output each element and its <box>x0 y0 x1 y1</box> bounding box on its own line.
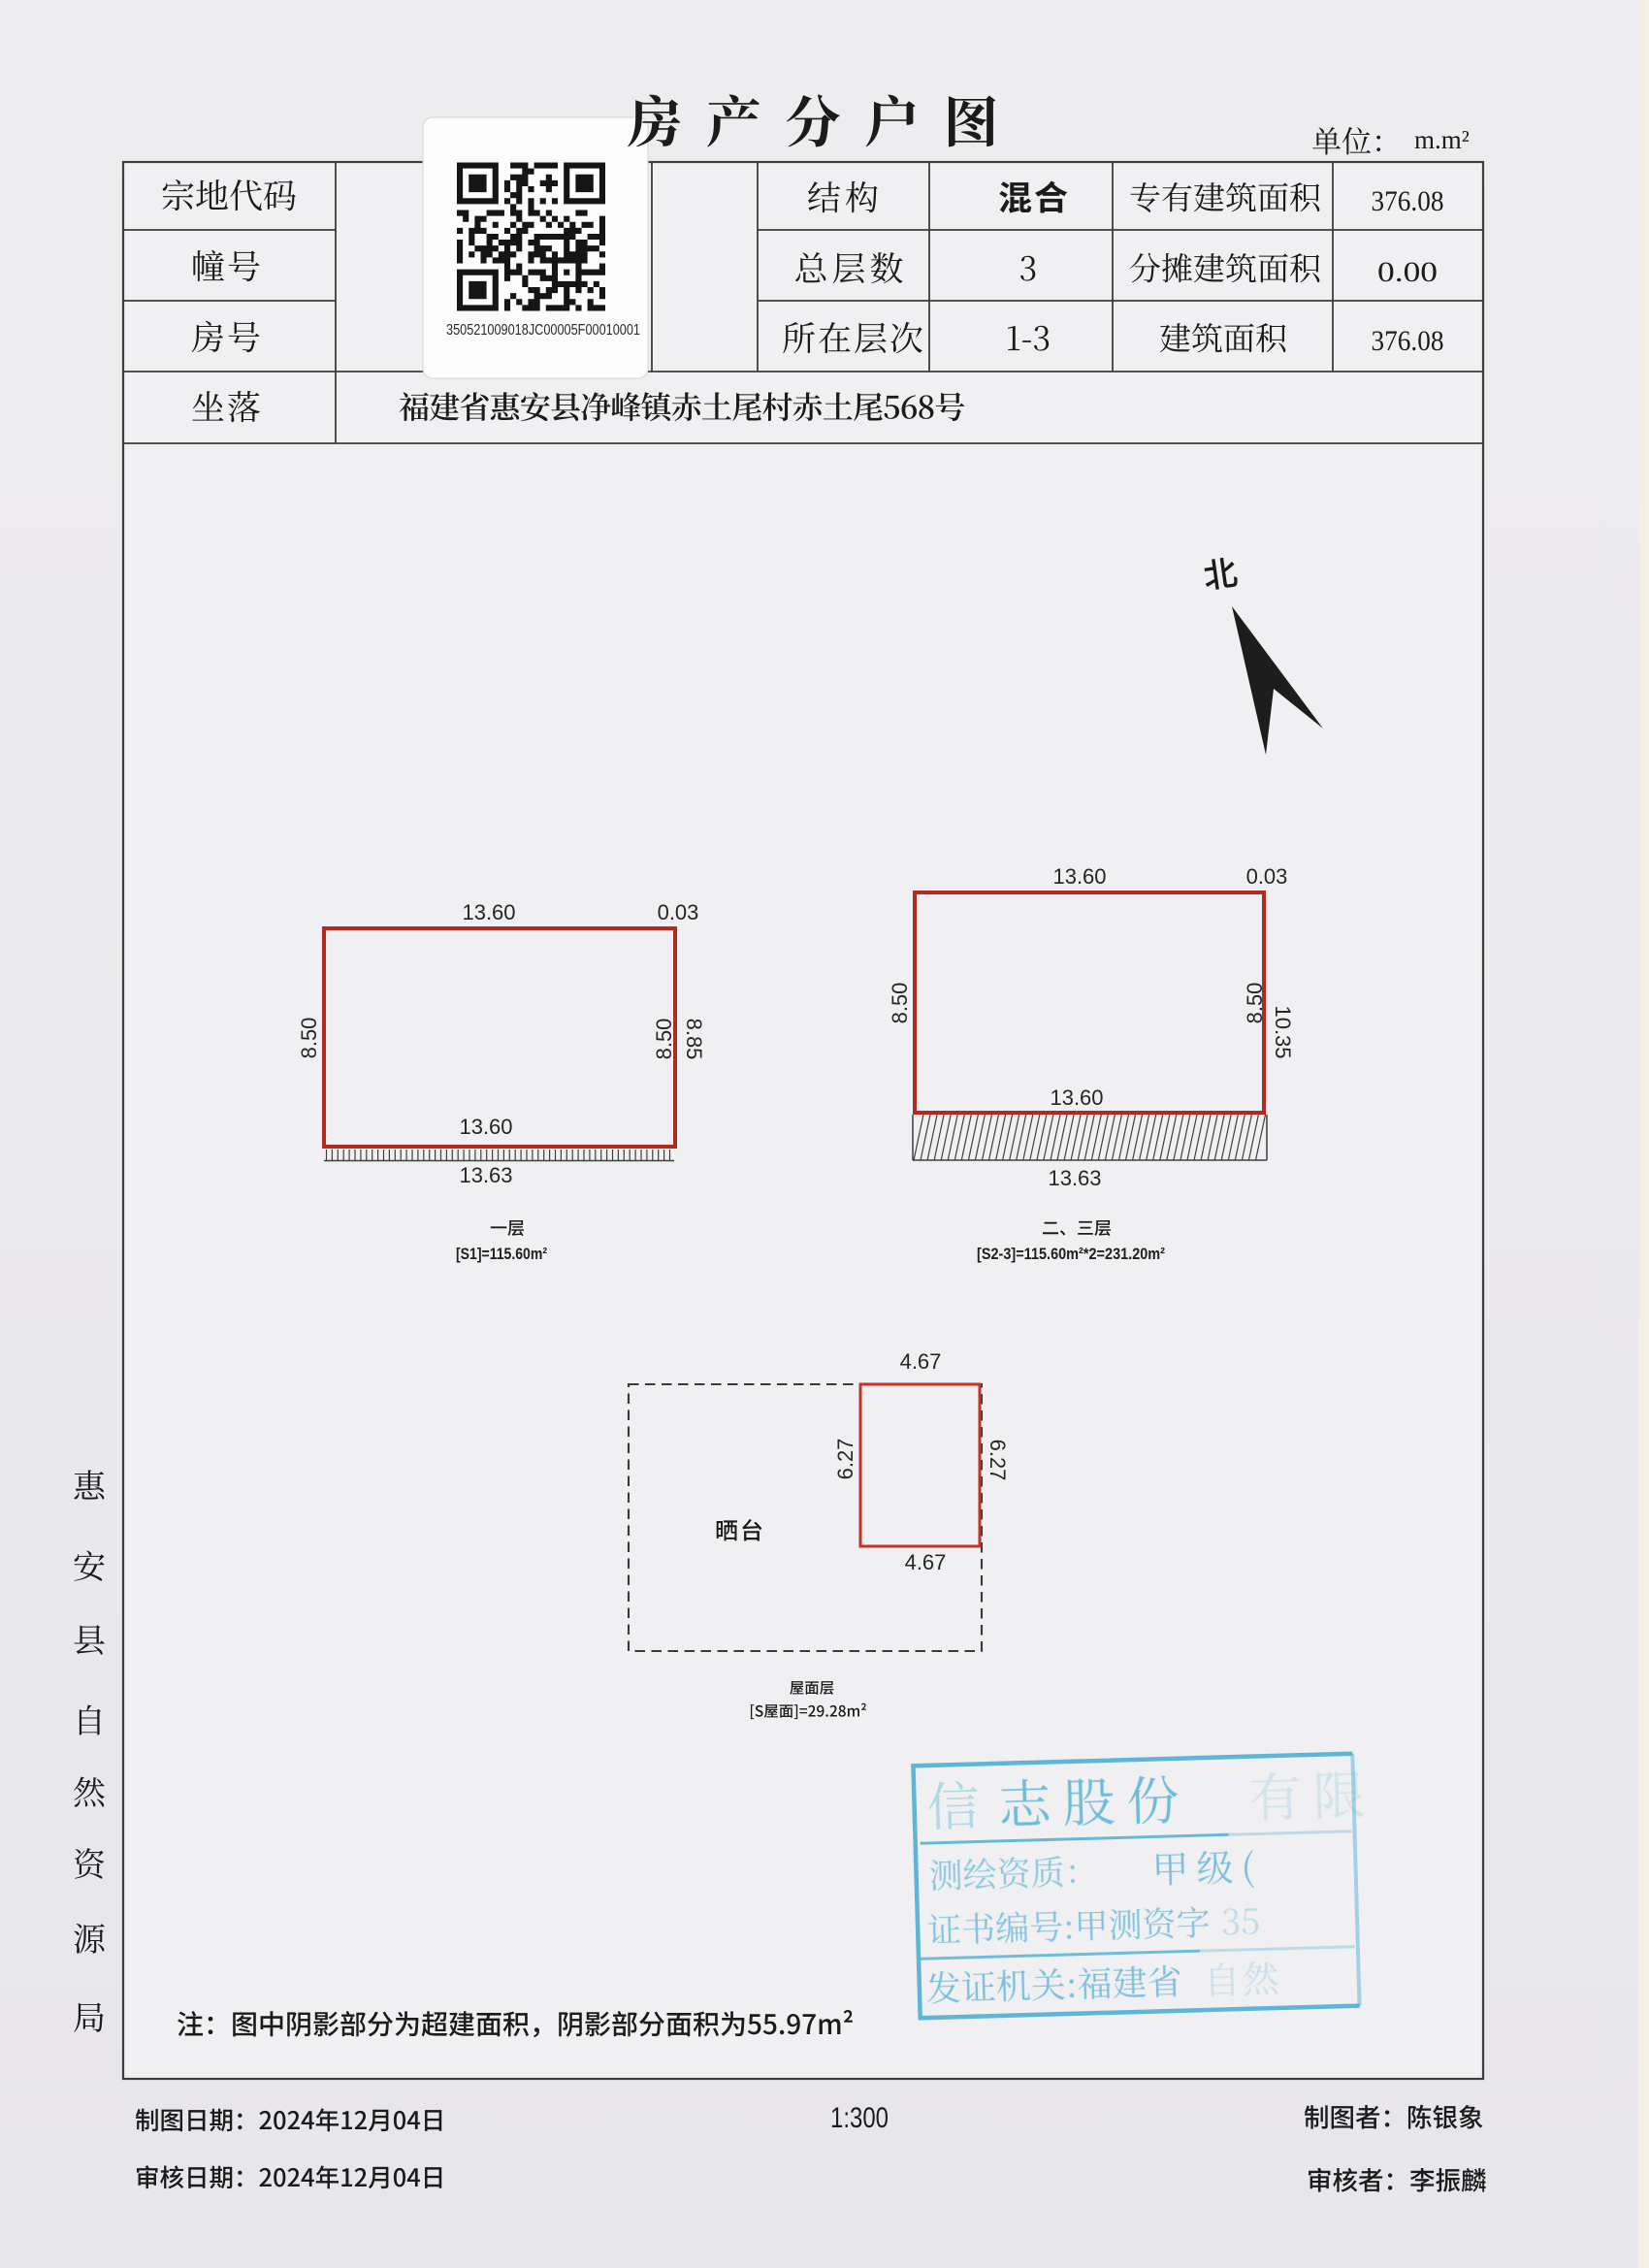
svg-text:350521009018JC00005F00010001: 350521009018JC00005F00010001 <box>446 322 640 339</box>
svg-text:1:300: 1:300 <box>830 2102 889 2134</box>
svg-text:[S2-3]=115.60m²*2=231.20m²: [S2-3]=115.60m²*2=231.20m² <box>977 1245 1165 1263</box>
svg-text:8.50: 8.50 <box>1243 983 1267 1024</box>
svg-text:m.m²: m.m² <box>1414 125 1470 154</box>
svg-text:10.35: 10.35 <box>1271 1005 1295 1058</box>
svg-text:0.03: 0.03 <box>658 900 699 924</box>
svg-text:13.60: 13.60 <box>459 1115 512 1139</box>
svg-text:13.60: 13.60 <box>1050 1085 1103 1110</box>
svg-text:13.60: 13.60 <box>462 900 515 924</box>
svg-text:4.67: 4.67 <box>905 1550 947 1574</box>
svg-text:[S1]=115.60m²: [S1]=115.60m² <box>456 1245 547 1263</box>
svg-text:8.50: 8.50 <box>888 983 912 1024</box>
svg-text:0.03: 0.03 <box>1246 864 1288 889</box>
svg-text:6.27: 6.27 <box>833 1439 857 1480</box>
svg-text:8.85: 8.85 <box>682 1019 706 1060</box>
svg-text:13.63: 13.63 <box>459 1163 512 1187</box>
svg-text:4.67: 4.67 <box>900 1349 942 1374</box>
svg-text:6.27: 6.27 <box>986 1440 1010 1481</box>
svg-text:376.08: 376.08 <box>1372 185 1444 217</box>
svg-text:8.50: 8.50 <box>297 1018 321 1059</box>
svg-text:376.08: 376.08 <box>1372 325 1444 357</box>
svg-text:13.63: 13.63 <box>1048 1166 1101 1190</box>
svg-text:0.00: 0.00 <box>1377 256 1438 288</box>
svg-text:8.50: 8.50 <box>652 1019 676 1060</box>
svg-text:13.60: 13.60 <box>1052 864 1106 889</box>
